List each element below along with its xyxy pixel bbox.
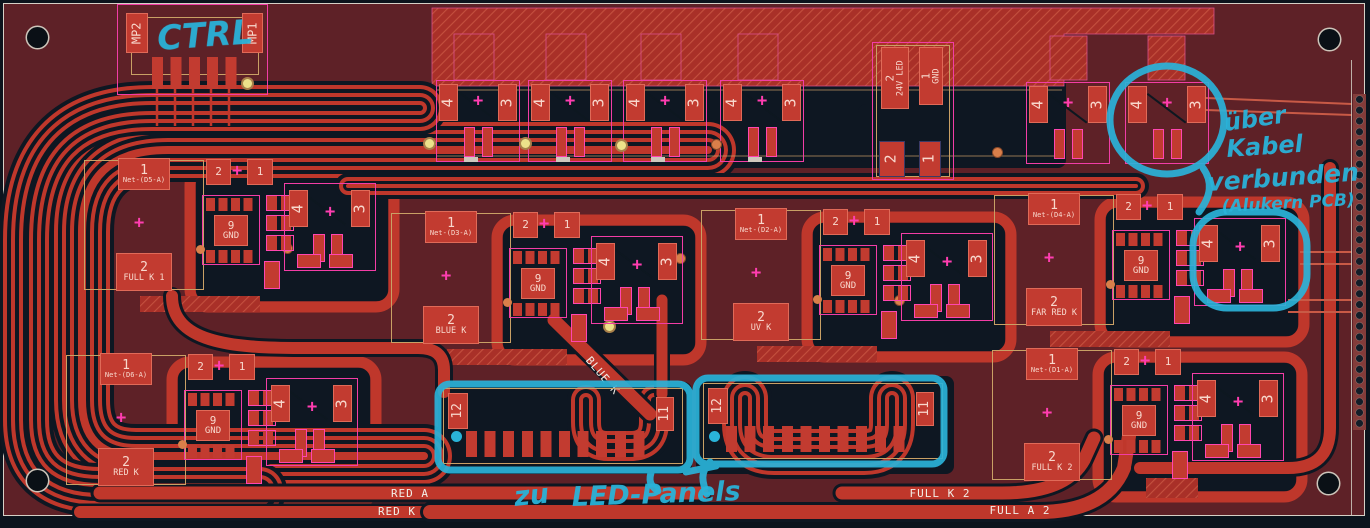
pad-anode-pin: 1 bbox=[122, 359, 130, 373]
origin-cross bbox=[751, 265, 761, 282]
passive-part[interactable] bbox=[1174, 296, 1190, 324]
ic-pads-bottom bbox=[188, 445, 238, 458]
pad-cathode-net: FULL K 2 bbox=[1032, 464, 1073, 473]
pad-cathode-pin: 2 bbox=[122, 456, 130, 470]
via bbox=[503, 298, 512, 307]
led-panel-connector-2[interactable]: 12 11 bbox=[703, 383, 943, 459]
solder-tab bbox=[748, 157, 762, 162]
pad-drain[interactable]: 4 bbox=[271, 385, 290, 422]
pad-drain[interactable]: 4 bbox=[1197, 380, 1216, 417]
pad-top-2-label: 2 bbox=[1125, 201, 1132, 213]
pad-drain-label: 4 bbox=[273, 399, 289, 408]
pad-source-label: 3 bbox=[687, 98, 703, 107]
pad-top-2-label: 2 bbox=[832, 216, 839, 228]
pad-source-label: 3 bbox=[1261, 394, 1277, 403]
via bbox=[521, 139, 530, 148]
origin-cross bbox=[1142, 198, 1152, 215]
mounting-hole bbox=[1318, 473, 1339, 494]
origin-cross bbox=[232, 163, 242, 180]
shunt-pad[interactable] bbox=[1207, 289, 1231, 303]
cluster-mosfet[interactable]: 4 3 bbox=[1192, 373, 1284, 461]
gnd-zone bbox=[432, 8, 1214, 86]
ic-pad-net: GND bbox=[205, 427, 221, 436]
shunt-pad[interactable] bbox=[297, 254, 321, 268]
shunt-pad[interactable] bbox=[311, 449, 335, 463]
pad-drain[interactable]: 4 bbox=[906, 240, 925, 277]
ic-pads-bottom bbox=[206, 250, 256, 263]
pad-anode[interactable]: 1Net-(D6-A) bbox=[100, 353, 152, 385]
gate-pad[interactable] bbox=[748, 127, 759, 157]
pad-mp1-label: MP1 bbox=[246, 22, 259, 44]
pad-top-2[interactable]: 2 bbox=[513, 212, 538, 238]
pad-drain-label: 4 bbox=[533, 98, 549, 107]
connector-pin-row[interactable] bbox=[466, 431, 652, 457]
pad-aux-1[interactable]: 1 bbox=[919, 141, 941, 177]
pad-anode[interactable]: 1Net-(D4-A) bbox=[1028, 193, 1080, 225]
pad-source[interactable]: 3 bbox=[1187, 86, 1206, 123]
mosfet-footprint[interactable]: 4 3 bbox=[720, 80, 804, 162]
edge-connector-holes bbox=[1353, 94, 1366, 430]
ic-thermal-pad[interactable]: 9GND bbox=[521, 268, 555, 299]
pad-source[interactable]: 3 bbox=[968, 240, 987, 277]
shunt-pad[interactable] bbox=[1237, 444, 1261, 458]
passive-part[interactable] bbox=[881, 311, 897, 339]
pad-top-1[interactable]: 1 bbox=[1157, 194, 1183, 220]
pad-anode-net: Net-(D6-A) bbox=[105, 372, 147, 379]
driver-ic[interactable]: 9GND bbox=[509, 248, 567, 318]
pad-drain[interactable]: 4 bbox=[531, 84, 550, 121]
ic-pad-net: GND bbox=[840, 282, 856, 291]
passive-part[interactable] bbox=[1172, 451, 1188, 479]
pad-cathode-net: FAR RED K bbox=[1031, 309, 1077, 318]
pad-top-2[interactable]: 2 bbox=[206, 159, 231, 185]
pad-top-2-label: 2 bbox=[215, 166, 222, 178]
pad-source-label: 3 bbox=[592, 98, 608, 107]
driver-cluster-red-k[interactable]: 1Net-(D6-A) 2RED K 2 1 9GND 4 3 bbox=[66, 350, 378, 512]
ic-pad-pin: 9 bbox=[1138, 255, 1145, 267]
pad-source[interactable]: 3 bbox=[498, 84, 517, 121]
pad-aux-2[interactable]: 2 bbox=[879, 141, 905, 177]
cluster-mosfet-cable-linked[interactable]: 4 3 bbox=[1194, 218, 1286, 306]
pad-11-label: 11 bbox=[658, 406, 672, 422]
ic-thermal-pad[interactable]: 9GND bbox=[1122, 405, 1156, 436]
pad-11[interactable]: 11 bbox=[656, 397, 674, 431]
pad-source-label: 3 bbox=[1189, 100, 1205, 109]
gate-pad[interactable] bbox=[1153, 129, 1164, 159]
pad-drain[interactable]: 4 bbox=[439, 84, 458, 121]
ctrl-signal-pads[interactable] bbox=[152, 57, 244, 89]
origin-cross bbox=[539, 216, 549, 233]
pad-drain-label: 4 bbox=[908, 254, 924, 263]
pad-source[interactable]: 3 bbox=[1261, 225, 1280, 262]
shunt-pad[interactable] bbox=[279, 449, 303, 463]
shunt-pad[interactable] bbox=[636, 307, 660, 321]
pad-12-label: 12 bbox=[451, 403, 465, 419]
pad-anode-net: Net-(D1-A) bbox=[1031, 367, 1073, 374]
ic-thermal-pad[interactable]: 9GND bbox=[1124, 250, 1158, 281]
pad-cathode[interactable]: 2FAR RED K bbox=[1026, 288, 1082, 326]
shunt-pad[interactable] bbox=[1205, 444, 1229, 458]
pad-cathode[interactable]: 2BLUE K bbox=[423, 306, 479, 344]
pad-anode[interactable]: 1Net-(D2-A) bbox=[735, 208, 787, 240]
pad-drain[interactable]: 4 bbox=[723, 84, 742, 121]
origin-cross bbox=[307, 399, 317, 416]
solder-tab bbox=[651, 157, 665, 162]
pad-drain-label: 4 bbox=[1031, 100, 1047, 109]
passive-part[interactable] bbox=[246, 456, 262, 484]
pad-drain-label: 4 bbox=[291, 204, 307, 213]
pad-source-label: 3 bbox=[970, 254, 986, 263]
shunt-pad[interactable] bbox=[329, 254, 353, 268]
cyan-marker-dot bbox=[451, 431, 462, 442]
driver-ic[interactable]: 9GND bbox=[202, 195, 260, 265]
pad-mp1[interactable]: MP1 bbox=[242, 13, 263, 53]
pad-top-1[interactable]: 1 bbox=[864, 209, 890, 235]
pad-top-2[interactable]: 2 bbox=[823, 209, 848, 235]
origin-cross bbox=[849, 213, 859, 230]
pad-anode-net: Net-(D5-A) bbox=[123, 177, 165, 184]
ic-pad-pin: 9 bbox=[1136, 410, 1143, 422]
via bbox=[1104, 435, 1113, 444]
ic-pads-top bbox=[1114, 388, 1164, 401]
label-red-k: RED K bbox=[378, 505, 416, 518]
pad-top-1[interactable]: 1 bbox=[554, 212, 580, 238]
label-red-a: RED A bbox=[391, 487, 429, 500]
pad-source[interactable]: 3 bbox=[1088, 86, 1107, 123]
driver-ic[interactable]: 9GND bbox=[184, 390, 242, 460]
origin-cross bbox=[1233, 394, 1243, 411]
sense-pad[interactable] bbox=[669, 127, 680, 157]
driver-ic[interactable]: 9GND bbox=[1110, 385, 1168, 455]
origin-cross bbox=[134, 215, 144, 232]
pad-24v-net: 24V LED bbox=[896, 60, 905, 96]
pad-cathode-net: UV K bbox=[751, 324, 771, 333]
driver-cluster-full-k1[interactable]: 1Net-(D5-A) 2FULL K 1 2 1 9GND 4 3 bbox=[84, 155, 396, 317]
board-edge-line bbox=[1351, 60, 1352, 516]
ic-thermal-pad[interactable]: 9GND bbox=[196, 410, 230, 441]
ic-pads-top bbox=[188, 393, 238, 406]
cluster-mosfet[interactable]: 4 3 bbox=[266, 378, 358, 466]
pad-drain[interactable]: 4 bbox=[1029, 86, 1048, 123]
pad-gnd[interactable]: 1GND bbox=[919, 47, 943, 105]
pad-drain-label: 4 bbox=[1201, 239, 1217, 248]
ic-pads-bottom bbox=[1114, 440, 1164, 453]
pad-top-1[interactable]: 1 bbox=[247, 159, 273, 185]
pad-source[interactable]: 3 bbox=[590, 84, 609, 121]
pad-11-label: 11 bbox=[918, 401, 932, 417]
pad-mp2-label: MP2 bbox=[131, 22, 144, 44]
pad-anode-pin: 1 bbox=[1050, 199, 1058, 213]
ic-pad-net: GND bbox=[530, 285, 546, 294]
driver-ic[interactable]: 9GND bbox=[819, 245, 877, 315]
pad-source[interactable]: 3 bbox=[333, 385, 352, 422]
pad-top-1-label: 1 bbox=[564, 219, 571, 231]
mosfet-footprint-cable-linked[interactable]: 4 3 bbox=[1125, 82, 1209, 164]
pad-anode[interactable]: 1Net-(D3-A) bbox=[425, 211, 477, 243]
pad-cathode-net: RED K bbox=[113, 469, 139, 478]
cluster-mosfet[interactable]: 4 3 bbox=[284, 183, 376, 271]
origin-cross bbox=[757, 93, 767, 110]
shunt-pad[interactable] bbox=[604, 307, 628, 321]
origin-cross bbox=[942, 254, 952, 271]
connector-pin-row[interactable] bbox=[726, 426, 912, 452]
pad-cathode-pin: 2 bbox=[140, 261, 148, 275]
origin-cross bbox=[1140, 353, 1150, 370]
pad-top-2-label: 2 bbox=[197, 361, 204, 373]
pad-cathode[interactable]: 2FULL K 2 bbox=[1024, 443, 1080, 481]
ic-pads-bottom bbox=[1116, 285, 1166, 298]
pad-12-label: 12 bbox=[711, 398, 725, 414]
sense-pad[interactable] bbox=[766, 127, 777, 157]
pad-anode-net: Net-(D2-A) bbox=[740, 227, 782, 234]
pad-top-2[interactable]: 2 bbox=[188, 354, 213, 380]
mosfet-footprint[interactable]: 4 3 bbox=[528, 80, 612, 162]
origin-cross bbox=[1063, 95, 1073, 112]
pad-anode[interactable]: 1Net-(D5-A) bbox=[118, 158, 170, 190]
pad-source[interactable]: 3 bbox=[658, 243, 677, 280]
pad-cathode-pin: 2 bbox=[1048, 451, 1056, 465]
via bbox=[1106, 280, 1115, 289]
pad-12[interactable]: 12 bbox=[448, 393, 468, 429]
via bbox=[243, 79, 252, 88]
pad-anode-pin: 1 bbox=[140, 164, 148, 178]
pad-top-1-label: 1 bbox=[257, 166, 264, 178]
origin-cross bbox=[214, 358, 224, 375]
power-input-footprint[interactable]: 224V LED 1GND 2 1 bbox=[872, 42, 954, 180]
sense-pad[interactable] bbox=[1171, 129, 1182, 159]
pad-top-1[interactable]: 1 bbox=[1155, 349, 1181, 375]
pad-12[interactable]: 12 bbox=[708, 388, 728, 424]
origin-cross bbox=[441, 268, 451, 285]
mounting-hole bbox=[27, 470, 48, 491]
pad-cathode-pin: 2 bbox=[757, 311, 765, 325]
ic-pads-bottom bbox=[513, 303, 563, 316]
gate-pad[interactable] bbox=[1054, 129, 1065, 159]
pad-drain-label: 4 bbox=[628, 98, 644, 107]
pad-top-2[interactable]: 2 bbox=[1116, 194, 1141, 220]
sense-pad[interactable] bbox=[1072, 129, 1083, 159]
origin-cross bbox=[565, 93, 575, 110]
pad-24v-pin: 2 bbox=[885, 60, 897, 96]
pad-top-1-label: 1 bbox=[874, 216, 881, 228]
pad-anode[interactable]: 1Net-(D1-A) bbox=[1026, 348, 1078, 380]
via bbox=[617, 141, 626, 150]
pad-drain[interactable]: 4 bbox=[1128, 86, 1147, 123]
passive-part[interactable] bbox=[264, 261, 280, 289]
pad-source-label: 3 bbox=[1263, 239, 1279, 248]
pad-11[interactable]: 11 bbox=[916, 392, 934, 426]
origin-cross bbox=[632, 257, 642, 274]
sense-pad[interactable] bbox=[574, 127, 585, 157]
ic-pad-pin: 9 bbox=[228, 220, 235, 232]
via bbox=[993, 148, 1002, 157]
ic-pad-pin: 9 bbox=[210, 415, 217, 427]
solder-tab bbox=[464, 157, 478, 162]
pad-top-1[interactable]: 1 bbox=[229, 354, 255, 380]
pad-source[interactable]: 3 bbox=[1259, 380, 1278, 417]
gate-pad[interactable] bbox=[556, 127, 567, 157]
pad-drain-label: 4 bbox=[1130, 100, 1146, 109]
ic-pads-top bbox=[206, 198, 256, 211]
ic-thermal-pad[interactable]: 9GND bbox=[214, 215, 248, 246]
origin-cross bbox=[660, 93, 670, 110]
ic-thermal-pad[interactable]: 9GND bbox=[831, 265, 865, 296]
pad-cathode[interactable]: 2UV K bbox=[733, 303, 789, 341]
ic-pads-bottom bbox=[823, 300, 873, 313]
pad-source-label: 3 bbox=[335, 399, 351, 408]
pad-top-2[interactable]: 2 bbox=[1114, 349, 1139, 375]
passive-part[interactable] bbox=[571, 314, 587, 342]
origin-cross bbox=[1162, 95, 1172, 112]
pcb-canvas: RED A RED K FULL K 2 FULL A 2 BLUE K MP2… bbox=[0, 0, 1370, 528]
mosfet-footprint[interactable]: 4 3 bbox=[623, 80, 707, 162]
origin-cross bbox=[325, 204, 335, 221]
driver-cluster-uv-k[interactable]: 1Net-(D2-A) 2UV K 2 1 9GND 4 3 bbox=[701, 205, 1013, 367]
cluster-mosfet[interactable]: 4 3 bbox=[591, 236, 683, 324]
sense-pad[interactable] bbox=[482, 127, 493, 157]
ic-pad-pin: 9 bbox=[845, 270, 852, 282]
origin-cross bbox=[1044, 250, 1054, 267]
pad-source-label: 3 bbox=[1090, 100, 1106, 109]
pad-source-label: 3 bbox=[353, 204, 369, 213]
label-full-k2: FULL K 2 bbox=[910, 487, 971, 500]
pad-drain-label: 4 bbox=[441, 98, 457, 107]
pad-aux-2-label: 2 bbox=[884, 154, 900, 163]
driver-ic[interactable]: 9GND bbox=[1112, 230, 1170, 300]
via bbox=[813, 295, 822, 304]
pad-drain[interactable]: 4 bbox=[289, 190, 308, 227]
pad-mp2[interactable]: MP2 bbox=[126, 13, 148, 53]
ic-pad-net: GND bbox=[1131, 422, 1147, 431]
pad-source[interactable]: 3 bbox=[782, 84, 801, 121]
ic-pad-net: GND bbox=[223, 232, 239, 241]
gate-pad[interactable] bbox=[464, 127, 475, 157]
pad-gnd-net: GND bbox=[932, 68, 941, 83]
pad-anode-pin: 1 bbox=[757, 214, 765, 228]
pad-top-1-label: 1 bbox=[1165, 356, 1172, 368]
cluster-mosfet[interactable]: 4 3 bbox=[901, 233, 993, 321]
ic-pad-net: GND bbox=[1133, 267, 1149, 276]
pad-top-2-label: 2 bbox=[522, 219, 529, 231]
pad-top-2-label: 2 bbox=[1123, 356, 1130, 368]
ic-pads-top bbox=[823, 248, 873, 261]
pad-source-label: 3 bbox=[660, 257, 676, 266]
pad-cathode[interactable]: 2FULL K 1 bbox=[116, 253, 172, 291]
origin-cross bbox=[116, 410, 126, 427]
pad-cathode-pin: 2 bbox=[447, 314, 455, 328]
origin-cross bbox=[1042, 405, 1052, 422]
origin-cross bbox=[473, 93, 483, 110]
pad-aux-1-label: 1 bbox=[922, 154, 938, 163]
ic-pads-top bbox=[1116, 233, 1166, 246]
pad-cathode[interactable]: 2RED K bbox=[98, 448, 154, 486]
mosfet-footprint[interactable]: 4 3 bbox=[436, 80, 520, 162]
pad-anode-net: Net-(D4-A) bbox=[1033, 212, 1075, 219]
via bbox=[712, 140, 721, 149]
pad-anode-net: Net-(D3-A) bbox=[430, 230, 472, 237]
pad-anode-pin: 1 bbox=[447, 217, 455, 231]
ic-pads-top bbox=[513, 251, 563, 264]
shunt-pad[interactable] bbox=[1239, 289, 1263, 303]
ic-pad-pin: 9 bbox=[535, 273, 542, 285]
solder-tab bbox=[556, 157, 570, 162]
pad-drain[interactable]: 4 bbox=[1199, 225, 1218, 262]
origin-cross bbox=[1235, 239, 1245, 256]
pad-drain[interactable]: 4 bbox=[596, 243, 615, 280]
pad-source-label: 3 bbox=[784, 98, 800, 107]
pad-drain-label: 4 bbox=[598, 257, 614, 266]
pad-drain-label: 4 bbox=[1199, 394, 1215, 403]
led-panel-connector-1[interactable]: 12 11 bbox=[443, 388, 683, 464]
driver-cluster-full-k2[interactable]: 1Net-(D1-A) 2FULL K 2 2 1 9GND 4 3 bbox=[992, 345, 1304, 507]
mounting-hole bbox=[1319, 29, 1340, 50]
mosfet-footprint[interactable]: 4 3 bbox=[1026, 82, 1110, 164]
via bbox=[178, 440, 187, 449]
shunt-pad[interactable] bbox=[914, 304, 938, 318]
pad-source[interactable]: 3 bbox=[685, 84, 704, 121]
pad-24v-led[interactable]: 224V LED bbox=[881, 47, 909, 109]
pad-drain[interactable]: 4 bbox=[626, 84, 645, 121]
gate-pad[interactable] bbox=[651, 127, 662, 157]
via bbox=[196, 245, 205, 254]
driver-cluster-far-red-k[interactable]: 1Net-(D4-A) 2FAR RED K 2 1 9GND 4 3 bbox=[994, 190, 1306, 352]
pad-source-label: 3 bbox=[500, 98, 516, 107]
pad-cathode-net: BLUE K bbox=[436, 327, 467, 336]
pad-anode-pin: 1 bbox=[1048, 354, 1056, 368]
pad-source[interactable]: 3 bbox=[351, 190, 370, 227]
pad-cathode-pin: 2 bbox=[1050, 296, 1058, 310]
pad-top-1-label: 1 bbox=[1167, 201, 1174, 213]
pad-cathode-net: FULL K 1 bbox=[124, 274, 165, 283]
mounting-hole bbox=[27, 27, 48, 48]
driver-cluster-blue-k[interactable]: 1Net-(D3-A) 2BLUE K 2 1 9GND 4 3 bbox=[391, 208, 703, 370]
shunt-pad[interactable] bbox=[946, 304, 970, 318]
pad-top-1-label: 1 bbox=[239, 361, 246, 373]
pad-drain-label: 4 bbox=[725, 98, 741, 107]
via bbox=[425, 139, 434, 148]
cyan-marker-dot bbox=[709, 431, 720, 442]
